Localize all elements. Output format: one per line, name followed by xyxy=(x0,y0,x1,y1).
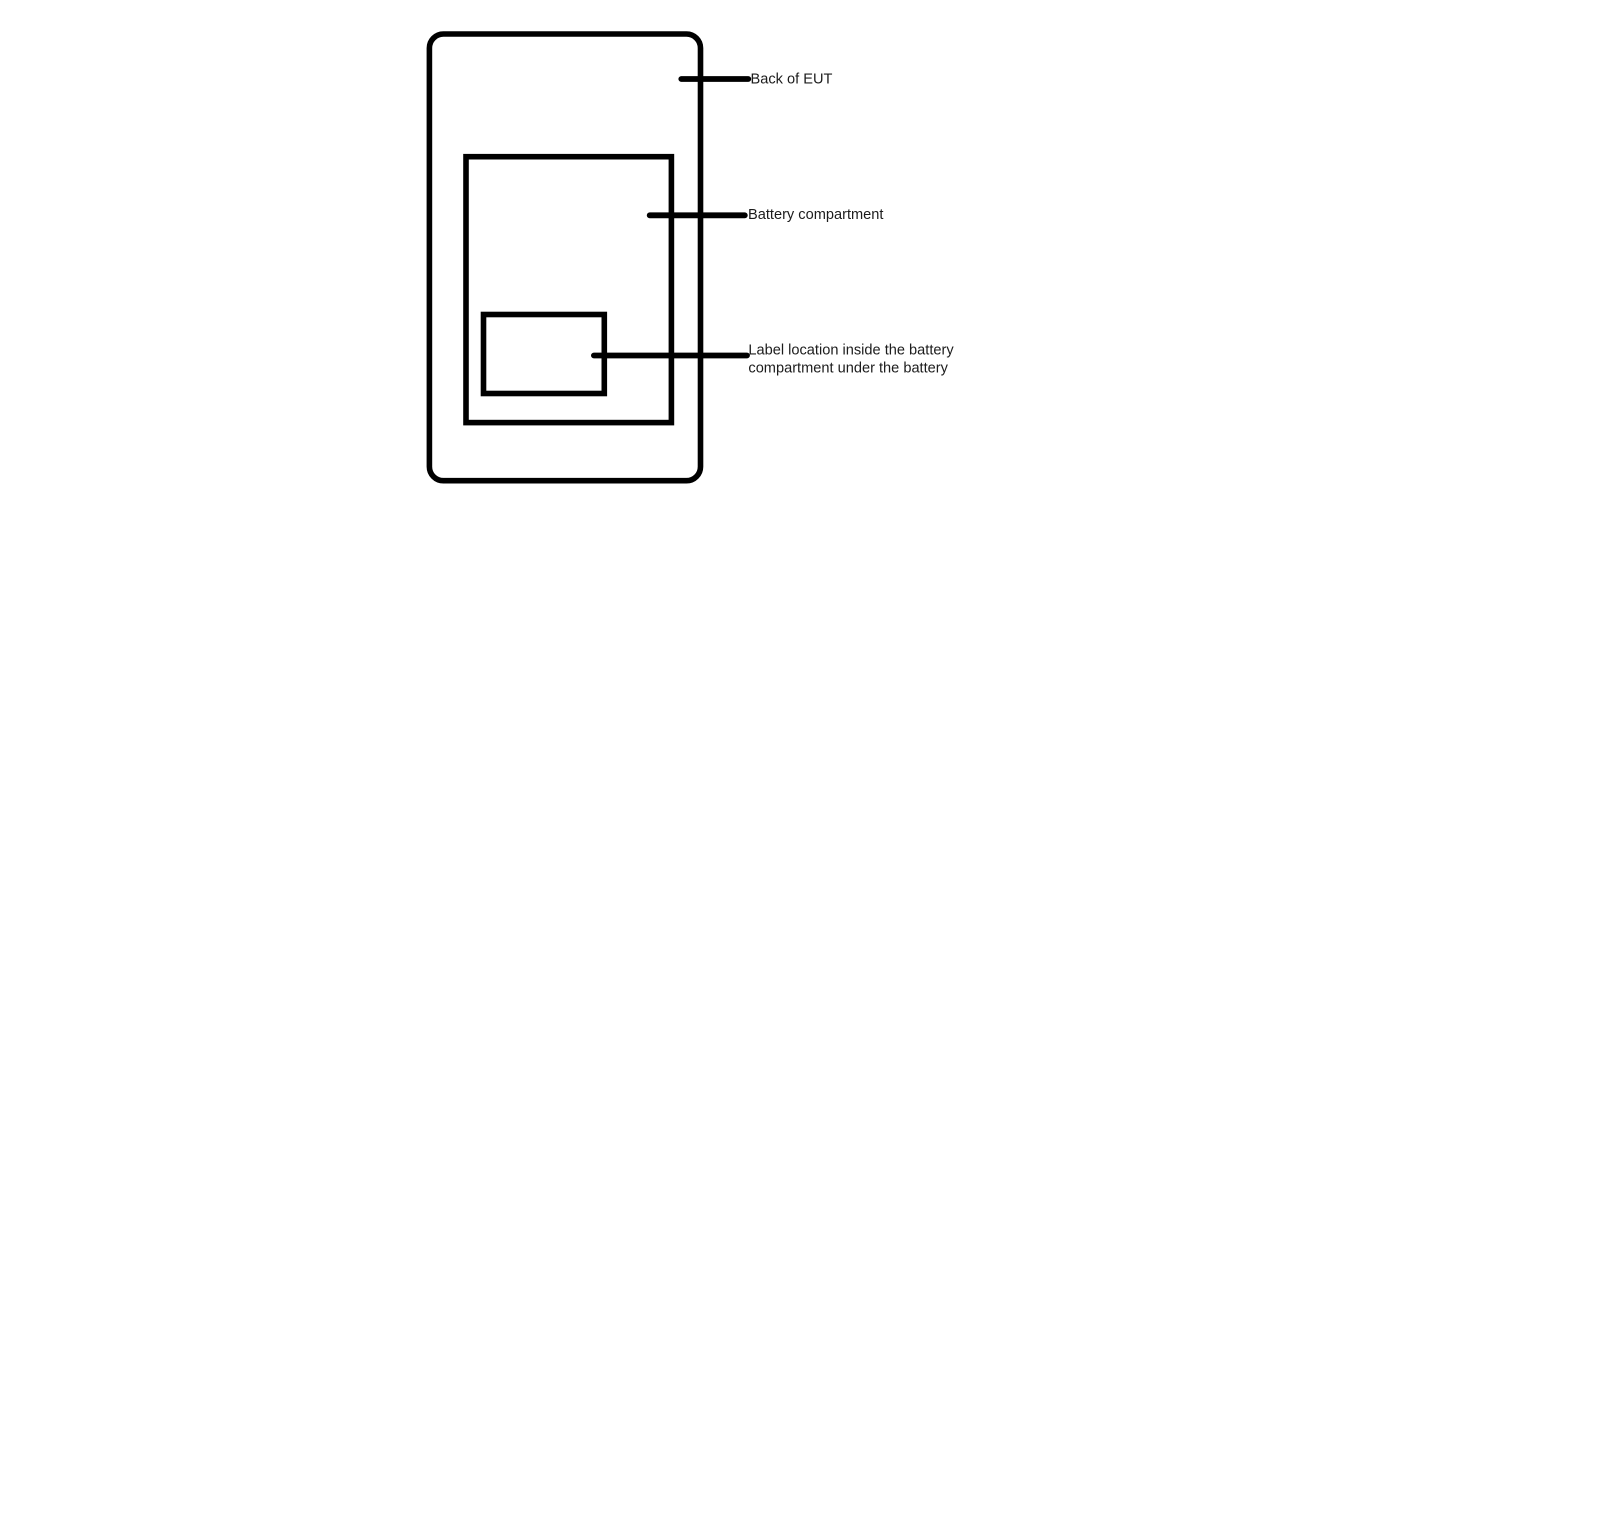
svg-text:Battery compartment: Battery compartment xyxy=(748,207,883,223)
svg-text:compartment under the battery: compartment under the battery xyxy=(748,360,948,376)
svg-text:Label location inside the batt: Label location inside the battery xyxy=(748,343,954,359)
svg-text:Back of EUT: Back of EUT xyxy=(751,72,833,88)
